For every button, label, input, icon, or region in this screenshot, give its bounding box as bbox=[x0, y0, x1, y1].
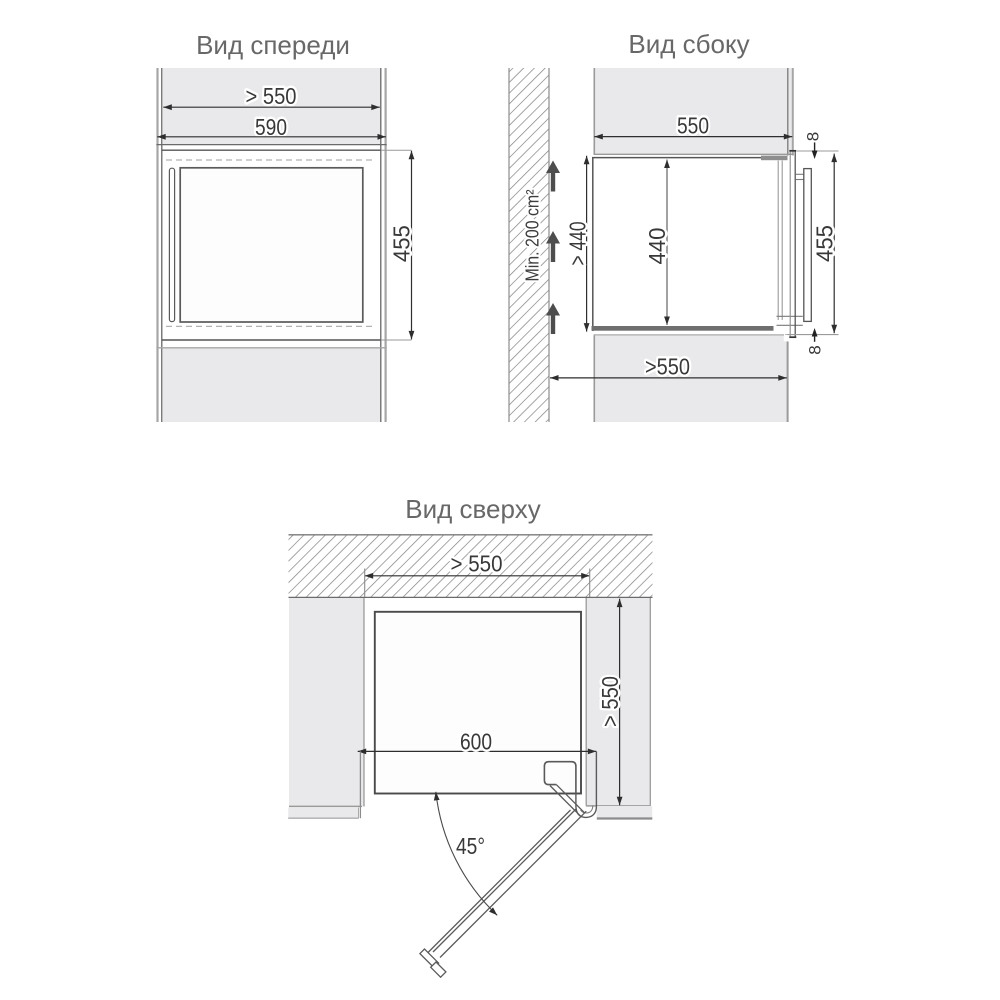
svg-text:> 440: > 440 bbox=[565, 222, 591, 266]
svg-text:Min. 200 cm²: Min. 200 cm² bbox=[523, 189, 543, 281]
svg-text:455: 455 bbox=[812, 225, 838, 262]
svg-text:550: 550 bbox=[677, 113, 709, 139]
svg-text:> 550: > 550 bbox=[451, 550, 503, 576]
svg-text:8: 8 bbox=[806, 345, 825, 354]
svg-text:Вид сверху: Вид сверху bbox=[405, 494, 540, 524]
svg-text:45°: 45° bbox=[456, 833, 485, 859]
svg-text:> 550: > 550 bbox=[597, 676, 623, 727]
svg-text:455: 455 bbox=[389, 225, 415, 262]
svg-text:440: 440 bbox=[644, 228, 670, 265]
svg-text:8: 8 bbox=[804, 132, 823, 141]
svg-text:Вид сбоку: Вид сбоку bbox=[628, 29, 749, 59]
svg-text:590: 590 bbox=[255, 114, 287, 140]
svg-text:Вид спереди: Вид спереди bbox=[196, 30, 350, 60]
svg-text:>550: >550 bbox=[645, 354, 690, 380]
svg-text:> 550: > 550 bbox=[246, 83, 297, 109]
svg-text:600: 600 bbox=[460, 729, 492, 755]
